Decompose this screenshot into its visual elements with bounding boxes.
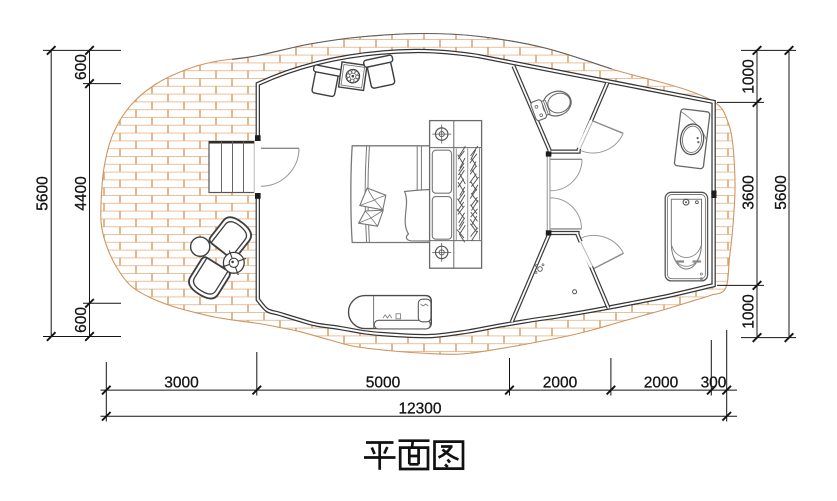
svg-text:600: 600 — [73, 54, 90, 80]
svg-text:600: 600 — [73, 307, 90, 333]
svg-text:3000: 3000 — [164, 374, 199, 391]
svg-text:300: 300 — [701, 374, 727, 391]
svg-text:1000: 1000 — [740, 59, 757, 94]
svg-text:12300: 12300 — [398, 401, 441, 418]
svg-text:5600: 5600 — [773, 175, 790, 210]
svg-text:5000: 5000 — [366, 374, 401, 391]
svg-text:2000: 2000 — [543, 374, 578, 391]
svg-text:5600: 5600 — [35, 176, 52, 211]
svg-text:3600: 3600 — [740, 175, 757, 210]
svg-text:1000: 1000 — [740, 294, 757, 329]
svg-text:4400: 4400 — [73, 176, 90, 211]
svg-text:2000: 2000 — [644, 374, 679, 391]
